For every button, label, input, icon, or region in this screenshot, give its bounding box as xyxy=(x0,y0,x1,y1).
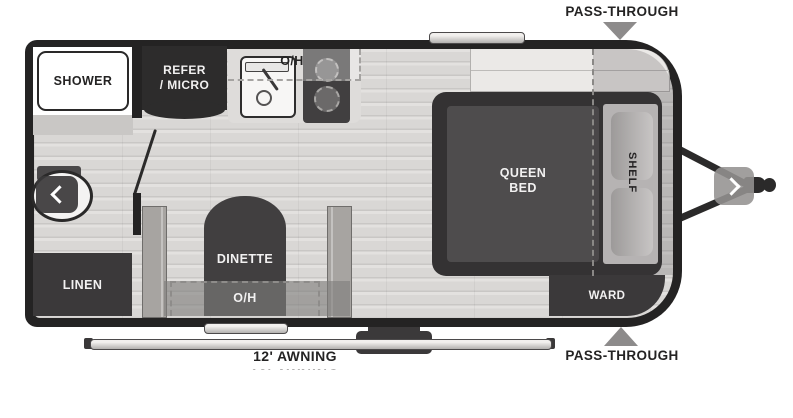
pass-through-marker-top-icon xyxy=(603,22,637,40)
sink-drain xyxy=(256,90,272,106)
floorplan-diagram: PASS-THROUGH SHOWER REFER / MICRO O/H LI xyxy=(0,0,793,418)
hitch-tip xyxy=(763,178,776,192)
awning-label: 12' AWNING xyxy=(225,348,365,364)
pass-through-label-top: PASS-THROUGH xyxy=(540,4,704,19)
shower-area: SHOWER xyxy=(33,47,133,115)
shower-label: SHOWER xyxy=(37,51,129,111)
refrigerator-microwave: REFER / MICRO xyxy=(142,46,227,110)
linen-cabinet: LINEN xyxy=(33,253,132,316)
pass-through-marker-bottom-icon xyxy=(604,327,638,346)
queen-bed-label-line2: BED xyxy=(447,181,599,196)
queen-bed-label: QUEEN BED xyxy=(447,166,599,196)
wardrobe-cabinet: WARD xyxy=(549,275,665,316)
queen-bed-label-line1: QUEEN xyxy=(447,166,599,181)
pass-through-shaded-zone xyxy=(593,49,673,275)
chevron-right-icon xyxy=(722,177,740,195)
roof-window-bar xyxy=(429,32,525,44)
carousel-prev-button[interactable] xyxy=(36,176,78,213)
awning-label-clipped: 12' AWNING xyxy=(225,366,365,370)
refer-label-line2: / MICRO xyxy=(160,78,209,93)
pass-through-label-bottom: PASS-THROUGH xyxy=(540,348,704,363)
carousel-next-button[interactable] xyxy=(714,167,754,205)
dinette-overhead-label: O/H xyxy=(204,291,286,305)
overhead-cabinet-dash xyxy=(228,79,361,81)
interior-wall xyxy=(132,46,142,118)
bathroom-floor-strip xyxy=(33,115,133,135)
burner-icon xyxy=(314,86,340,112)
overhead-cabinet-dash xyxy=(359,49,361,80)
kitchen-overhead-label: O/H xyxy=(268,54,316,68)
dinette-label: DINETTE xyxy=(204,252,286,266)
ward-label: WARD xyxy=(589,290,626,302)
refer-label-line1: REFER xyxy=(163,63,206,78)
chevron-left-icon xyxy=(50,185,68,203)
interior-wall-stub xyxy=(133,193,141,235)
pass-through-divider-dash xyxy=(592,49,594,276)
linen-label: LINEN xyxy=(63,278,103,292)
entry-grab-handle xyxy=(204,323,288,334)
